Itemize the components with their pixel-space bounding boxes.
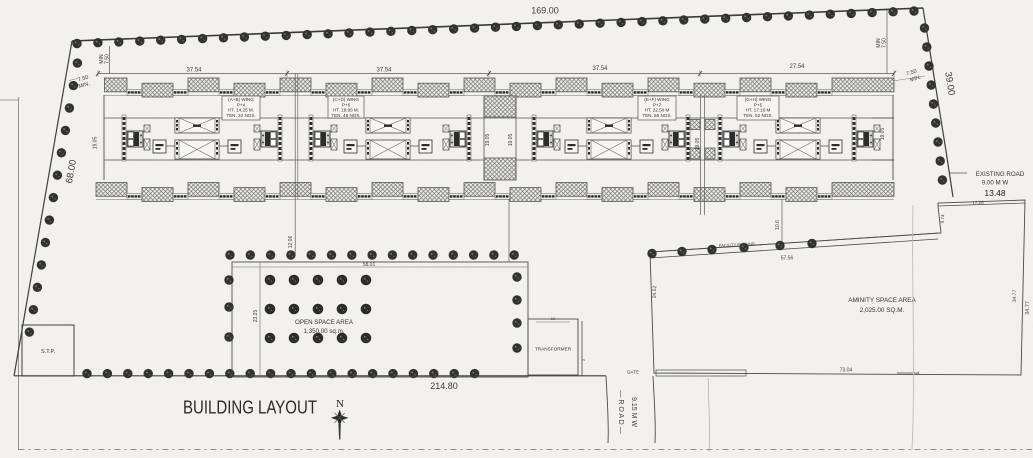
- svg-text:214.80: 214.80: [430, 381, 458, 391]
- svg-text:— R O A D —: — R O A D —: [617, 390, 624, 433]
- svg-text:58.01: 58.01: [363, 262, 376, 268]
- svg-text:TEN. 32 NOS.: TEN. 32 NOS.: [226, 113, 255, 118]
- svg-text:10.6: 10.6: [775, 220, 781, 230]
- svg-text:compound wall: compound wall: [897, 371, 920, 375]
- svg-text:2,025.00 SQ.M.: 2,025.00 SQ.M.: [860, 307, 905, 314]
- svg-text:37.54: 37.54: [186, 68, 202, 74]
- svg-text:19.05: 19.05: [485, 134, 491, 147]
- svg-text:19.05: 19.05: [508, 134, 514, 147]
- svg-text:23.25: 23.25: [253, 310, 259, 323]
- svg-text:19.05: 19.05: [880, 128, 886, 141]
- svg-text:N: N: [336, 398, 344, 410]
- svg-text:57.56: 57.56: [781, 256, 794, 262]
- svg-text:34.77: 34.77: [1025, 301, 1031, 315]
- svg-text:19.05: 19.05: [93, 137, 99, 150]
- svg-text:TRANSFORMER: TRANSFORMER: [535, 347, 572, 352]
- svg-text:27.54: 27.54: [789, 64, 805, 70]
- svg-text:OPEN SPACE AREA: OPEN SPACE AREA: [295, 319, 354, 326]
- svg-text:AMINITY SPACE AREA: AMINITY SPACE AREA: [848, 297, 916, 304]
- svg-text:13.48: 13.48: [984, 188, 1006, 198]
- svg-text:169.00: 169.00: [531, 6, 559, 16]
- svg-text:9.15 M W: 9.15 M W: [630, 397, 637, 427]
- svg-text:19.05: 19.05: [695, 138, 701, 151]
- svg-text:TEN. 52 NOS.: TEN. 52 NOS.: [743, 113, 772, 118]
- svg-text:7.50: 7.50: [105, 54, 111, 64]
- svg-text:24.52: 24.52: [652, 285, 658, 298]
- svg-text:S.T.P.: S.T.P.: [41, 349, 55, 355]
- svg-text:7.50: 7.50: [882, 38, 888, 48]
- svg-text:GATE: GATE: [627, 370, 639, 375]
- svg-text:TEN. 48 NOS.: TEN. 48 NOS.: [331, 113, 360, 118]
- svg-text:73.04: 73.04: [840, 368, 853, 374]
- svg-text:12.06: 12.06: [288, 236, 294, 249]
- svg-text:8.74: 8.74: [940, 214, 946, 224]
- svg-text:9.00 M W: 9.00 M W: [982, 180, 1009, 187]
- svg-text:EXISTING ROAD: EXISTING ROAD: [976, 171, 1025, 178]
- svg-text:10: 10: [551, 316, 556, 321]
- svg-text:37.54: 37.54: [592, 66, 608, 72]
- svg-text:34.77: 34.77: [1012, 289, 1018, 302]
- svg-text:BUILDING LAYOUT: BUILDING LAYOUT: [183, 397, 317, 418]
- svg-text:1,350.00 sq.m.: 1,350.00 sq.m.: [304, 328, 345, 335]
- svg-text:TEN. 56 NOS.: TEN. 56 NOS.: [642, 113, 671, 118]
- svg-text:17.26: 17.26: [972, 200, 984, 205]
- svg-text:37.54: 37.54: [376, 68, 392, 74]
